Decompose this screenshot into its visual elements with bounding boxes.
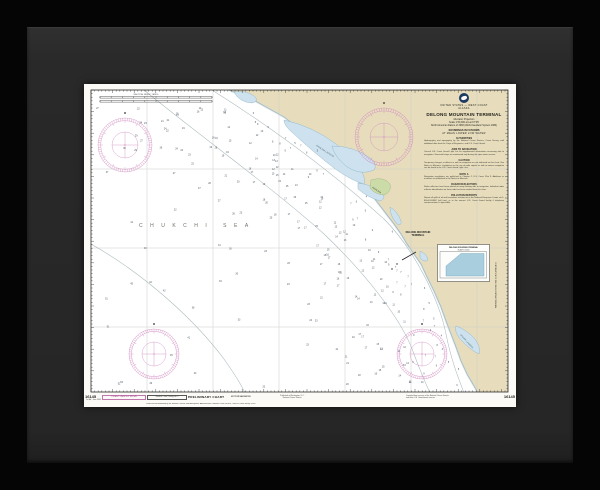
preliminary-chart-label: PRELIMINARY CHART	[188, 395, 224, 399]
note-block: CAUTIONTemporary changes or defects in a…	[416, 159, 512, 170]
terminal-label: DELONG MOUNTAIN TERMINAL	[400, 231, 436, 237]
chart-title: DELONG MOUNTAIN TERMINAL	[416, 112, 512, 117]
publisher-note: Published at Washington, D.C. National O…	[280, 395, 304, 399]
imprint-line: Produced and distributed by the National…	[146, 403, 446, 405]
state-line: ALASKA	[416, 107, 512, 110]
edition-note: 1st Ed., June 2005	[86, 399, 101, 401]
sea-name-label: CHUKCHI SEA	[139, 223, 256, 229]
svg-text:NAUTICAL MILES / YARDS: NAUTICAL MILES / YARDS	[134, 93, 159, 96]
note-block: POLLUTION REPORTSReport all spills of oi…	[416, 194, 512, 205]
framed-chart-print: NAUTICAL MILES / YARDS CHUKCHI SEA KIVAL…	[0, 0, 600, 490]
side-note: CONTINUATION OF DELONG MOUNTAIN TERMINAL	[494, 262, 496, 308]
not-for-navigation-note: NOT FOR NAVIGATION	[231, 396, 251, 398]
note-block: NOTE ANavigation regulations are publish…	[416, 173, 512, 181]
note-block: AUTHORITIESHydrography and topography by…	[416, 137, 512, 145]
compilation-note: Compiled from surveys of the National Oc…	[406, 395, 449, 399]
note-block: RADAR REFLECTORSRadar reflectors have be…	[416, 183, 512, 191]
inset-plan: DELONG MOUNTAIN TERMINAL SCALE 1:20,000	[438, 245, 490, 282]
chart-notes: AUTHORITIESHydrography and topography by…	[416, 137, 512, 205]
chart-number-left: 16145	[85, 394, 96, 399]
note-block: AIDS TO NAVIGATIONConsult U.S. Coast Gua…	[416, 148, 512, 156]
margin-box-magenta: LORAN-C LINES NOT SHOWN	[102, 395, 146, 400]
datum-note: AT MEAN LOWER LOW WATER	[416, 132, 512, 135]
title-block: UNITED STATES — WEST COAST ALASKA DELONG…	[416, 93, 512, 205]
chart-number-right: 16145	[504, 394, 515, 399]
chart-paper: NAUTICAL MILES / YARDS CHUKCHI SEA KIVAL…	[84, 84, 516, 407]
noaa-logo-icon	[459, 93, 469, 103]
svg-text:DELONG MOUNTAIN TERMINAL: DELONG MOUNTAIN TERMINAL	[449, 246, 479, 249]
margin-box-catalog: Nautical Chart Catalog No. 3	[147, 395, 187, 400]
datum-line: North American Datum of 1983 (World Geod…	[416, 124, 512, 127]
